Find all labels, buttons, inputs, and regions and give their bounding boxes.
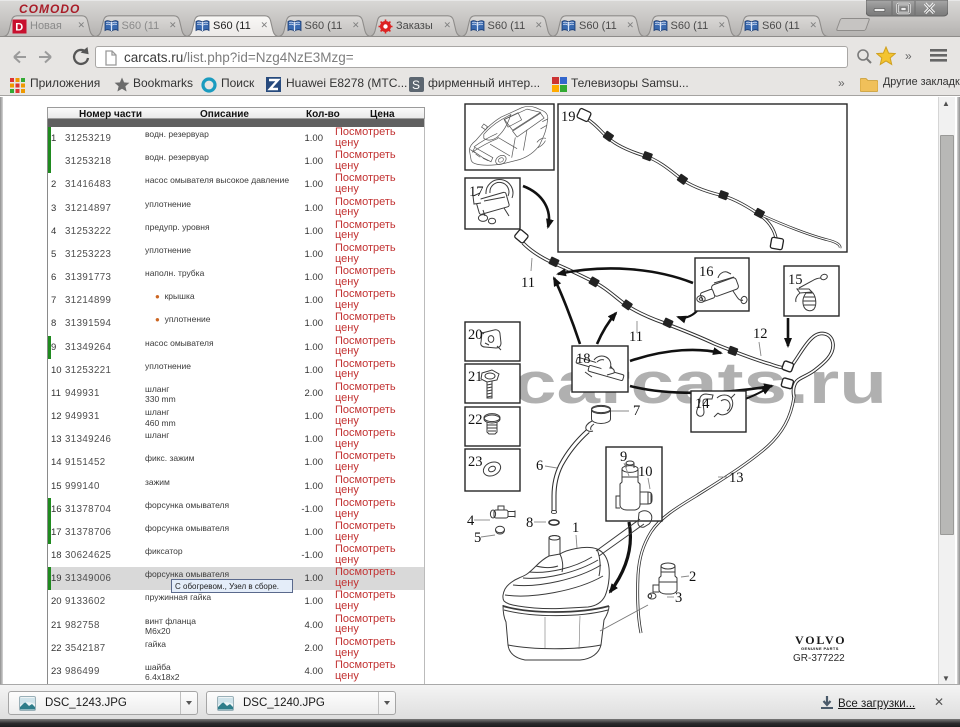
svg-text:21: 21 bbox=[468, 369, 483, 385]
svg-text:S: S bbox=[412, 78, 420, 92]
svg-text:GR-377222: GR-377222 bbox=[793, 653, 845, 664]
svg-text:4: 4 bbox=[467, 513, 475, 529]
svg-text:15: 15 bbox=[788, 272, 803, 288]
svg-text:17: 17 bbox=[469, 184, 484, 200]
svg-text:18: 18 bbox=[576, 351, 591, 367]
svg-text:9: 9 bbox=[620, 449, 627, 465]
svg-text:VOLVO: VOLVO bbox=[795, 633, 846, 647]
svg-text:10: 10 bbox=[638, 464, 653, 480]
svg-text:14: 14 bbox=[695, 396, 710, 412]
svg-text:23: 23 bbox=[468, 454, 483, 470]
svg-text:16: 16 bbox=[699, 264, 714, 280]
svg-text:12: 12 bbox=[753, 326, 768, 342]
svg-text:19: 19 bbox=[561, 109, 576, 125]
svg-text:2: 2 bbox=[689, 569, 696, 585]
svg-text:11: 11 bbox=[521, 275, 535, 291]
svg-text:13: 13 bbox=[729, 470, 744, 486]
svg-text:1: 1 bbox=[572, 520, 579, 536]
svg-text:3: 3 bbox=[675, 590, 682, 606]
svg-text:22: 22 bbox=[468, 412, 483, 428]
svg-text:5: 5 bbox=[474, 530, 481, 546]
svg-text:GENUINE PARTS: GENUINE PARTS bbox=[801, 646, 839, 651]
svg-text:11: 11 bbox=[629, 329, 643, 345]
svg-text:7: 7 bbox=[633, 403, 640, 419]
svg-text:20: 20 bbox=[468, 327, 483, 343]
svg-text:D: D bbox=[15, 21, 23, 33]
svg-text:6: 6 bbox=[536, 458, 543, 474]
svg-text:8: 8 bbox=[526, 515, 533, 531]
